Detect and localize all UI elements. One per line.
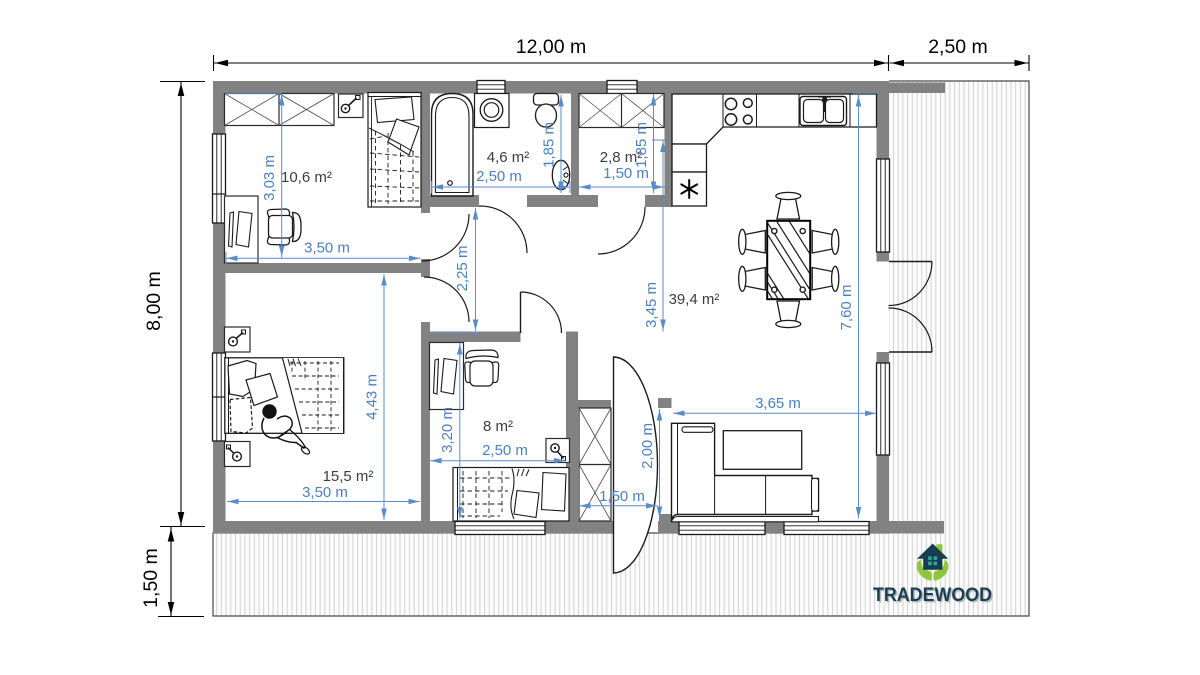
svg-text:3,03 m: 3,03 m: [261, 155, 278, 201]
svg-text:7,60 m: 7,60 m: [838, 285, 855, 331]
svg-text:3,50 m: 3,50 m: [302, 484, 348, 501]
svg-text:2,25 m: 2,25 m: [454, 246, 471, 292]
svg-text:39,4 m²: 39,4 m²: [669, 291, 720, 308]
svg-text:2,50 m: 2,50 m: [928, 36, 988, 58]
svg-text:3,50 m: 3,50 m: [304, 240, 350, 257]
svg-text:4,43 m: 4,43 m: [364, 374, 381, 420]
svg-text:3,45 m: 3,45 m: [643, 282, 660, 328]
svg-text:8,00 m: 8,00 m: [143, 271, 165, 331]
svg-text:2,50 m: 2,50 m: [482, 442, 528, 459]
svg-text:TRADEWOOD: TRADEWOOD: [873, 584, 992, 606]
svg-text:15,5 m²: 15,5 m²: [323, 468, 374, 485]
svg-text:4,6 m²: 4,6 m²: [487, 149, 530, 166]
svg-text:1,85 m: 1,85 m: [541, 122, 558, 168]
svg-text:12,00 m: 12,00 m: [516, 36, 586, 58]
svg-text:8 m²: 8 m²: [483, 418, 513, 435]
svg-text:2,50 m: 2,50 m: [476, 168, 522, 185]
svg-text:3,65 m: 3,65 m: [755, 395, 801, 412]
svg-text:1,50 m: 1,50 m: [140, 548, 162, 608]
svg-text:2,00 m: 2,00 m: [639, 423, 656, 469]
svg-text:10,6 m²: 10,6 m²: [281, 169, 332, 186]
svg-text:1,50 m: 1,50 m: [599, 488, 645, 505]
svg-text:1,85 m: 1,85 m: [633, 122, 650, 168]
svg-text:3,20 m: 3,20 m: [439, 407, 456, 453]
